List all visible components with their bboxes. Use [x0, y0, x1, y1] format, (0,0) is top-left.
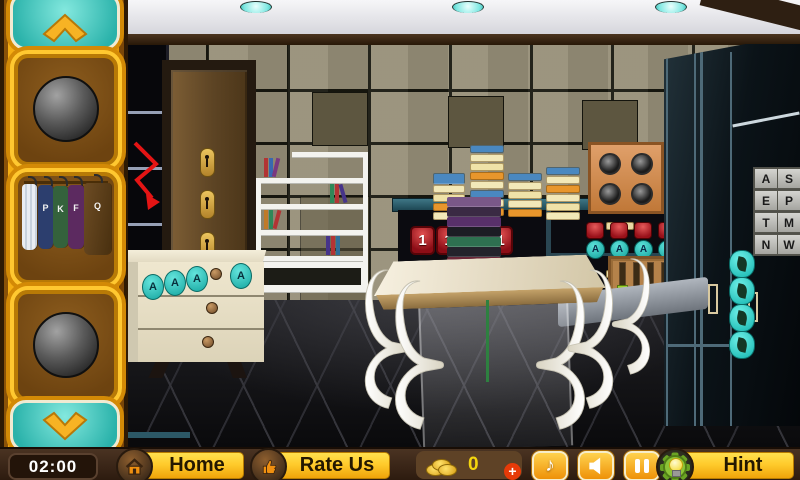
ceiling-light-icon [452, 1, 484, 13]
shelf-edge [128, 111, 166, 114]
speaker-box[interactable] [588, 142, 664, 214]
book-stack[interactable] [546, 166, 580, 220]
inventory-scroll-up-button[interactable] [10, 0, 120, 50]
thumb-up-icon [260, 458, 278, 476]
chevron-up-icon [42, 13, 88, 43]
speaker-cone-icon [599, 153, 621, 175]
speaker-cone-icon [631, 183, 653, 205]
drawer-knob[interactable] [210, 268, 222, 280]
letter-button[interactable]: A [164, 270, 186, 296]
letter-tile[interactable]: S [777, 168, 800, 189]
ceiling-light-icon [240, 1, 272, 13]
hint-button[interactable] [656, 448, 694, 480]
gray-ball-item[interactable] [33, 312, 99, 378]
code-button-1[interactable]: 1 [410, 226, 435, 255]
chevron-down-icon [42, 411, 88, 441]
cabinet-edge [694, 48, 696, 430]
rate-us-button[interactable] [250, 448, 287, 480]
shelf-edge [128, 223, 166, 226]
speaker-cone-icon [631, 153, 653, 175]
letter-tile[interactable]: E [754, 190, 778, 211]
sound-button[interactable] [578, 451, 614, 480]
speaker-cone-icon [599, 183, 621, 205]
red-button[interactable] [586, 222, 604, 239]
home-button[interactable] [116, 448, 153, 480]
drawer-knob[interactable] [206, 302, 218, 314]
timer-display: 02:00 [8, 453, 98, 480]
shirt-item[interactable]: F [68, 185, 84, 249]
shelf-base-void [263, 268, 361, 285]
music-note-icon: ♪ [545, 455, 555, 477]
drawer-knob[interactable] [202, 336, 214, 348]
coins-count: 0 [468, 454, 479, 476]
letter-tile[interactable]: A [754, 168, 778, 189]
bulb-gear-icon [658, 450, 692, 480]
shirt-item[interactable]: P [38, 185, 53, 249]
inventory-slot[interactable] [10, 50, 122, 170]
crown-molding [128, 34, 800, 45]
red-zigzag-arrow[interactable] [130, 138, 164, 220]
inventory-slot[interactable] [10, 286, 122, 406]
keyhole-icon[interactable] [200, 148, 215, 177]
green-stem[interactable] [486, 300, 489, 382]
red-button[interactable] [634, 222, 652, 239]
leaf-button[interactable] [729, 277, 755, 305]
letter-button[interactable]: A [142, 274, 164, 300]
cabinet-handle[interactable] [708, 284, 718, 314]
letter-tile[interactable]: W [777, 234, 800, 255]
music-button[interactable]: ♪ [532, 451, 568, 480]
letter-tile[interactable]: N [754, 234, 778, 255]
add-coins-button[interactable]: + [504, 463, 521, 480]
pause-button[interactable] [624, 451, 660, 480]
letter-tile[interactable]: T [754, 212, 778, 233]
hud-bar: 02:00 Home Rate Us 0 + [0, 447, 800, 480]
letter-button[interactable]: A [186, 266, 208, 292]
leaf-button[interactable] [729, 250, 755, 278]
inventory-scroll-down-button[interactable] [10, 400, 120, 452]
dresser-leg [227, 362, 247, 378]
letter-grid[interactable]: A S E P T M N W [753, 167, 800, 256]
speaker-icon [586, 456, 606, 476]
hanger-icon [59, 176, 68, 186]
letter-button[interactable]: A [230, 263, 252, 289]
keyhole-icon[interactable] [200, 190, 215, 219]
coins-panel: 0 + [416, 451, 522, 479]
cabinet-edge [730, 52, 732, 434]
shelf-board [256, 230, 368, 235]
white-bookshelf[interactable] [256, 152, 368, 306]
cabinet-highlight [732, 112, 799, 128]
wall-dark-tile [312, 92, 368, 146]
shelf-board [256, 204, 368, 209]
shelf-board [292, 152, 368, 157]
shelf-rail [363, 152, 368, 262]
cabinet-edge [668, 344, 730, 347]
chair[interactable] [560, 262, 616, 420]
drawer-line [138, 328, 264, 330]
shelf-board [256, 256, 368, 261]
inventory-sidebar: P K F Q [0, 0, 128, 447]
shirt-item[interactable]: K [53, 186, 68, 248]
gray-ball-item[interactable] [33, 76, 99, 142]
leaf-button[interactable] [729, 304, 755, 332]
red-button[interactable] [610, 222, 628, 239]
wall-dark-tile [448, 96, 504, 148]
game-screen: 1 1 1 1 A A A A A [0, 0, 800, 480]
cabinet-edge [666, 44, 668, 426]
letter-tile[interactable]: M [777, 212, 800, 233]
chair[interactable] [392, 274, 452, 440]
cabinet-edge [700, 48, 703, 430]
book-stack[interactable] [508, 172, 542, 217]
shelf-board [256, 178, 368, 183]
coin-icon [438, 464, 457, 476]
ceiling-light-icon [655, 1, 687, 13]
letter-tile[interactable]: P [777, 190, 800, 211]
pause-icon [635, 459, 649, 473]
house-icon [125, 458, 144, 476]
shirt-item[interactable] [22, 184, 37, 250]
dresser[interactable]: A A A A [118, 250, 268, 376]
shirt-item[interactable]: Q [84, 183, 111, 255]
dresser-leg [148, 362, 169, 378]
inventory-slot[interactable]: P K F Q [10, 168, 122, 288]
leaf-button[interactable] [729, 331, 755, 359]
